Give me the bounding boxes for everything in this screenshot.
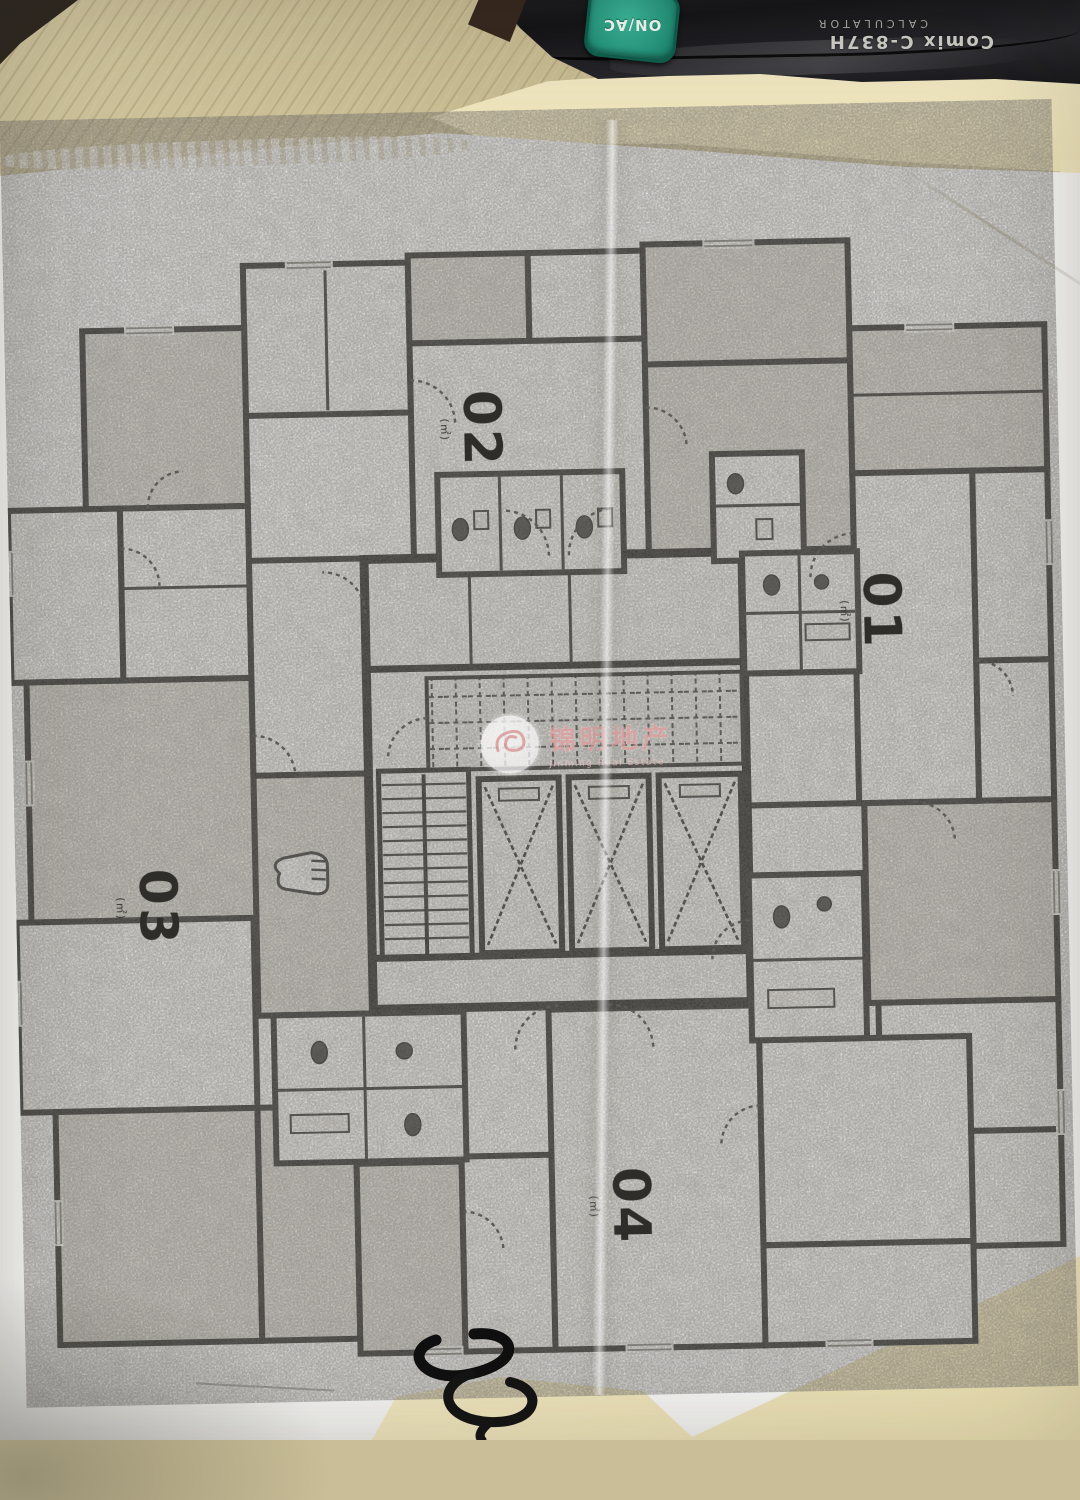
calculator-brand: Comix <box>922 31 994 52</box>
unit-number: 03 <box>130 868 184 947</box>
floor-plan: 02 (㎡) 01 (㎡) 03 (㎡) 04 (㎡) 锦明地产 Jinming… <box>0 99 1078 1408</box>
unit-label-02: 02 (㎡) <box>438 389 508 469</box>
unit-label-03: 03 (㎡) <box>114 868 184 948</box>
unit-area-note: (㎡) <box>114 869 127 948</box>
onac-key-label: ON/AC <box>603 16 661 34</box>
calculator-onac-key: ON/AC <box>583 0 682 65</box>
corner-shadow <box>0 1260 360 1500</box>
calculator-label: CALCULATOR <box>690 17 928 30</box>
floor-plan-drawing <box>0 99 1078 1408</box>
unit-number: 01 <box>854 571 908 650</box>
photo-of-floor-plan: { "calculator": { "brand": "Comix", "mod… <box>0 0 1080 1440</box>
unit-area-note: (㎡) <box>438 390 451 469</box>
photocopy-grain-overlay <box>0 99 1078 1408</box>
calculator-print: Comix C-837H CALCULATOR <box>690 0 1020 52</box>
calculator-model: C-837H <box>828 31 914 52</box>
unit-label-01: 01 (㎡) <box>838 571 908 651</box>
spiral-binding-icon <box>398 1322 598 1440</box>
calculator-brand-model: Comix C-837H <box>690 31 994 52</box>
unit-number: 02 <box>454 389 508 468</box>
unit-area-note: (㎡) <box>838 572 851 651</box>
